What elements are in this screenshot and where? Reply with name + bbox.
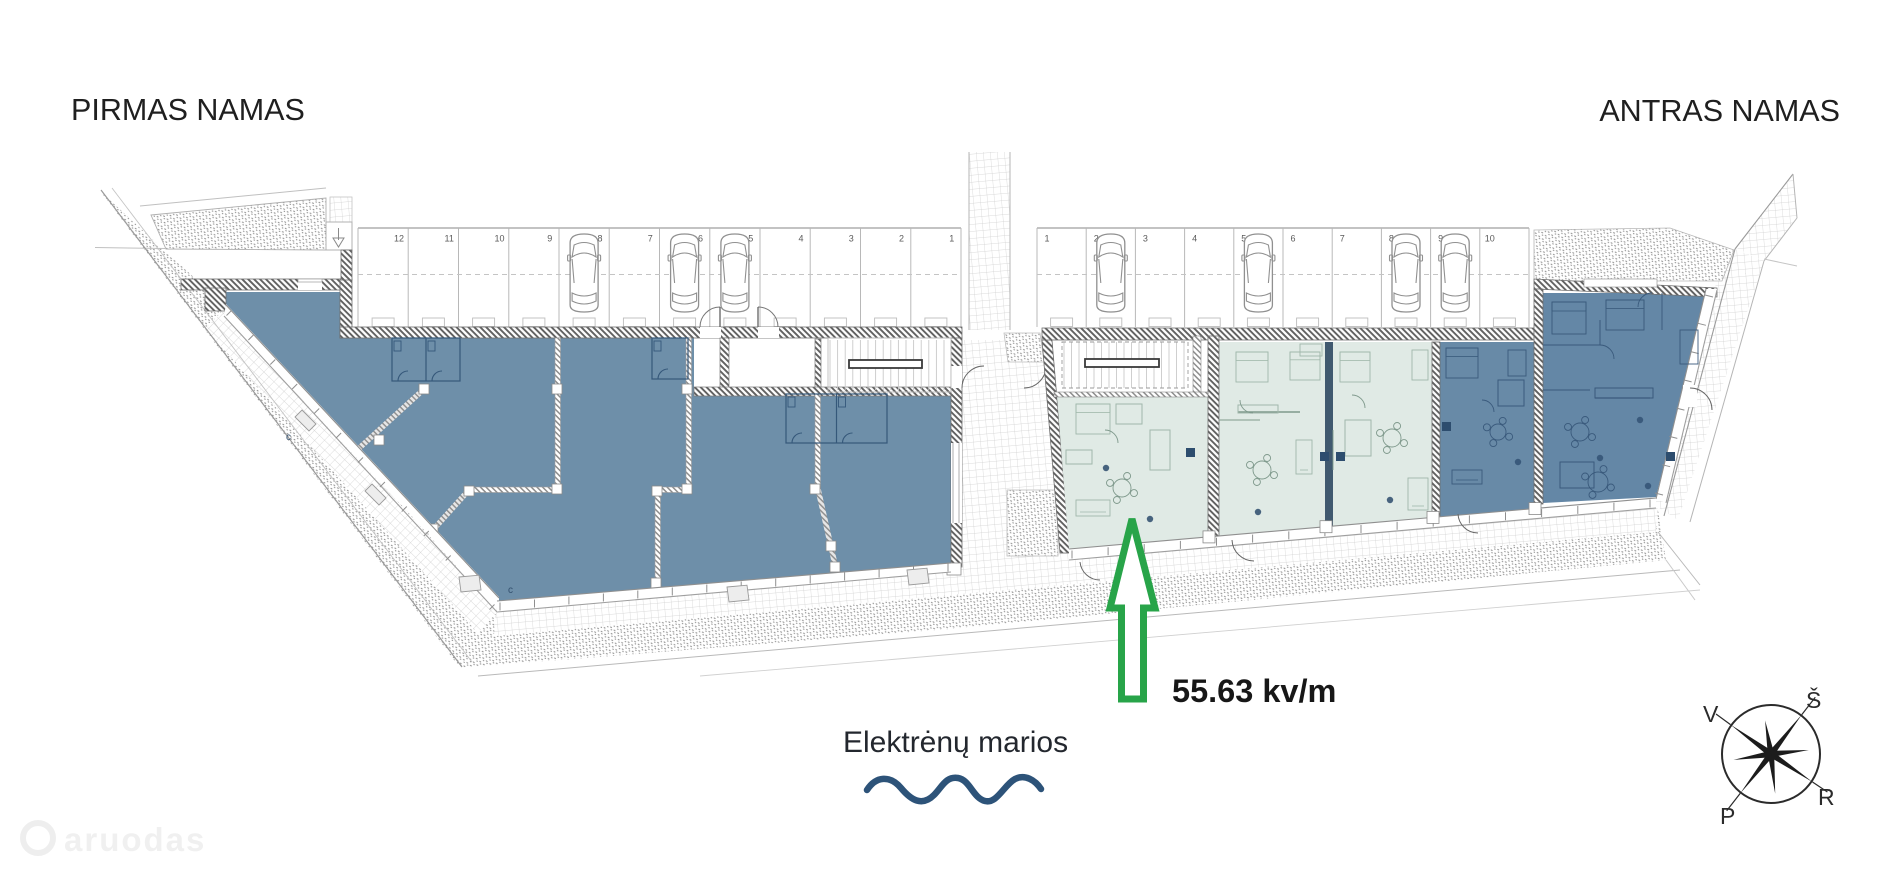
svg-text:55.63 kv/m: 55.63 kv/m xyxy=(1172,673,1336,709)
svg-text:c: c xyxy=(508,585,513,596)
svg-text:6: 6 xyxy=(1290,234,1295,244)
svg-text:Elektrėnų marios: Elektrėnų marios xyxy=(843,726,1068,759)
svg-text:c: c xyxy=(286,432,291,443)
svg-text:1: 1 xyxy=(949,234,954,244)
svg-text:3: 3 xyxy=(849,234,854,244)
svg-text:aruodas: aruodas xyxy=(64,821,206,858)
svg-text:11: 11 xyxy=(445,234,454,244)
svg-text:R: R xyxy=(1818,784,1835,810)
svg-text:2: 2 xyxy=(899,234,904,244)
svg-text:3: 3 xyxy=(1143,234,1148,244)
svg-text:ANTRAS NAMAS: ANTRAS NAMAS xyxy=(1599,94,1840,128)
svg-text:7: 7 xyxy=(1340,234,1345,244)
svg-text:9: 9 xyxy=(547,234,552,244)
svg-text:4: 4 xyxy=(798,234,803,244)
svg-text:P: P xyxy=(1720,803,1735,829)
svg-text:10: 10 xyxy=(1485,234,1495,244)
svg-text:7: 7 xyxy=(648,234,653,244)
svg-text:12: 12 xyxy=(394,234,404,244)
svg-text:4: 4 xyxy=(1192,234,1197,244)
svg-text:PIRMAS NAMAS: PIRMAS NAMAS xyxy=(71,93,305,127)
svg-text:V: V xyxy=(1703,701,1719,727)
svg-text:Š: Š xyxy=(1806,686,1821,713)
svg-text:10: 10 xyxy=(494,234,504,244)
svg-text:1: 1 xyxy=(1044,234,1049,244)
